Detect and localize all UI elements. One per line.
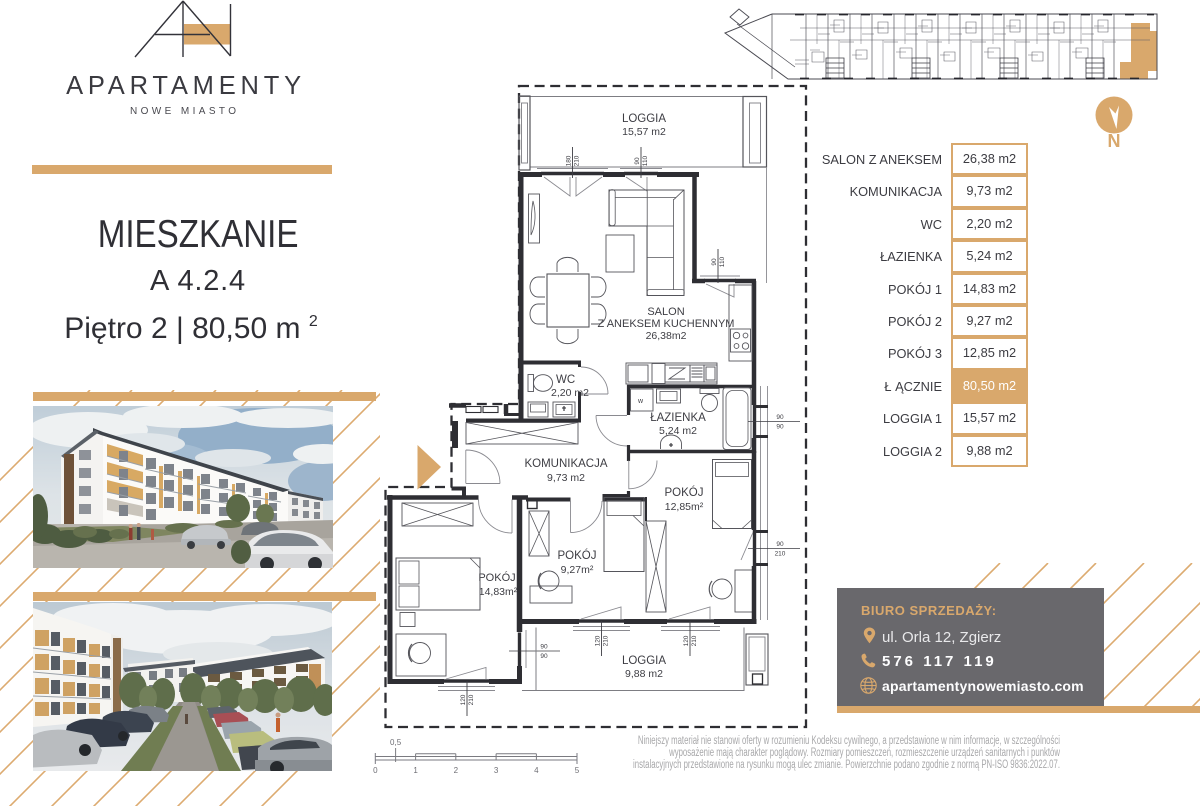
svg-text:210: 210	[574, 155, 581, 166]
svg-text:120: 120	[683, 635, 690, 646]
svg-text:2: 2	[454, 766, 459, 775]
svg-text:5: 5	[575, 766, 580, 775]
svg-text:ŁAZIENKA: ŁAZIENKA	[650, 412, 706, 424]
svg-text:210: 210	[775, 551, 786, 558]
svg-text:210: 210	[691, 635, 698, 646]
svg-text:210: 210	[603, 635, 610, 646]
svg-text:26,38m2: 26,38m2	[646, 330, 687, 342]
svg-text:POKÓJ: POKÓJ	[665, 486, 704, 499]
svg-text:90: 90	[540, 644, 548, 651]
svg-text:180: 180	[566, 155, 573, 166]
svg-text:12,85m²: 12,85m²	[665, 501, 704, 513]
svg-text:KOMUNIKACJA: KOMUNIKACJA	[524, 458, 607, 470]
svg-text:1: 1	[413, 766, 418, 775]
svg-text:0,5: 0,5	[390, 738, 402, 747]
svg-text:120: 120	[460, 694, 467, 705]
svg-text:9,88 m2: 9,88 m2	[625, 668, 663, 680]
svg-text:WC: WC	[556, 374, 575, 386]
svg-text:w: w	[637, 398, 644, 405]
svg-text:90: 90	[776, 541, 784, 548]
svg-text:0: 0	[373, 766, 378, 775]
svg-text:9,73 m2: 9,73 m2	[547, 472, 585, 484]
svg-text:4: 4	[534, 766, 539, 775]
svg-text:14,83m²: 14,83m²	[479, 586, 518, 598]
svg-text:15,57 m2: 15,57 m2	[622, 126, 666, 138]
svg-text:SALON: SALON	[647, 306, 684, 318]
svg-text:LOGGIA: LOGGIA	[622, 113, 666, 125]
svg-text:2,20 m2: 2,20 m2	[551, 387, 589, 399]
svg-text:POKÓJ: POKÓJ	[478, 571, 515, 584]
svg-text:90: 90	[634, 157, 641, 165]
svg-text:110: 110	[642, 155, 649, 166]
svg-text:N: N	[1108, 131, 1121, 151]
svg-text:LOGGIA: LOGGIA	[622, 655, 666, 667]
svg-text:POKÓJ: POKÓJ	[558, 549, 597, 562]
svg-text:90: 90	[540, 653, 548, 660]
svg-text:120: 120	[595, 635, 602, 646]
svg-text:210: 210	[468, 694, 475, 705]
svg-text:5,24 m2: 5,24 m2	[659, 425, 697, 437]
svg-text:9,27m²: 9,27m²	[561, 564, 594, 576]
svg-text:3: 3	[494, 766, 499, 775]
